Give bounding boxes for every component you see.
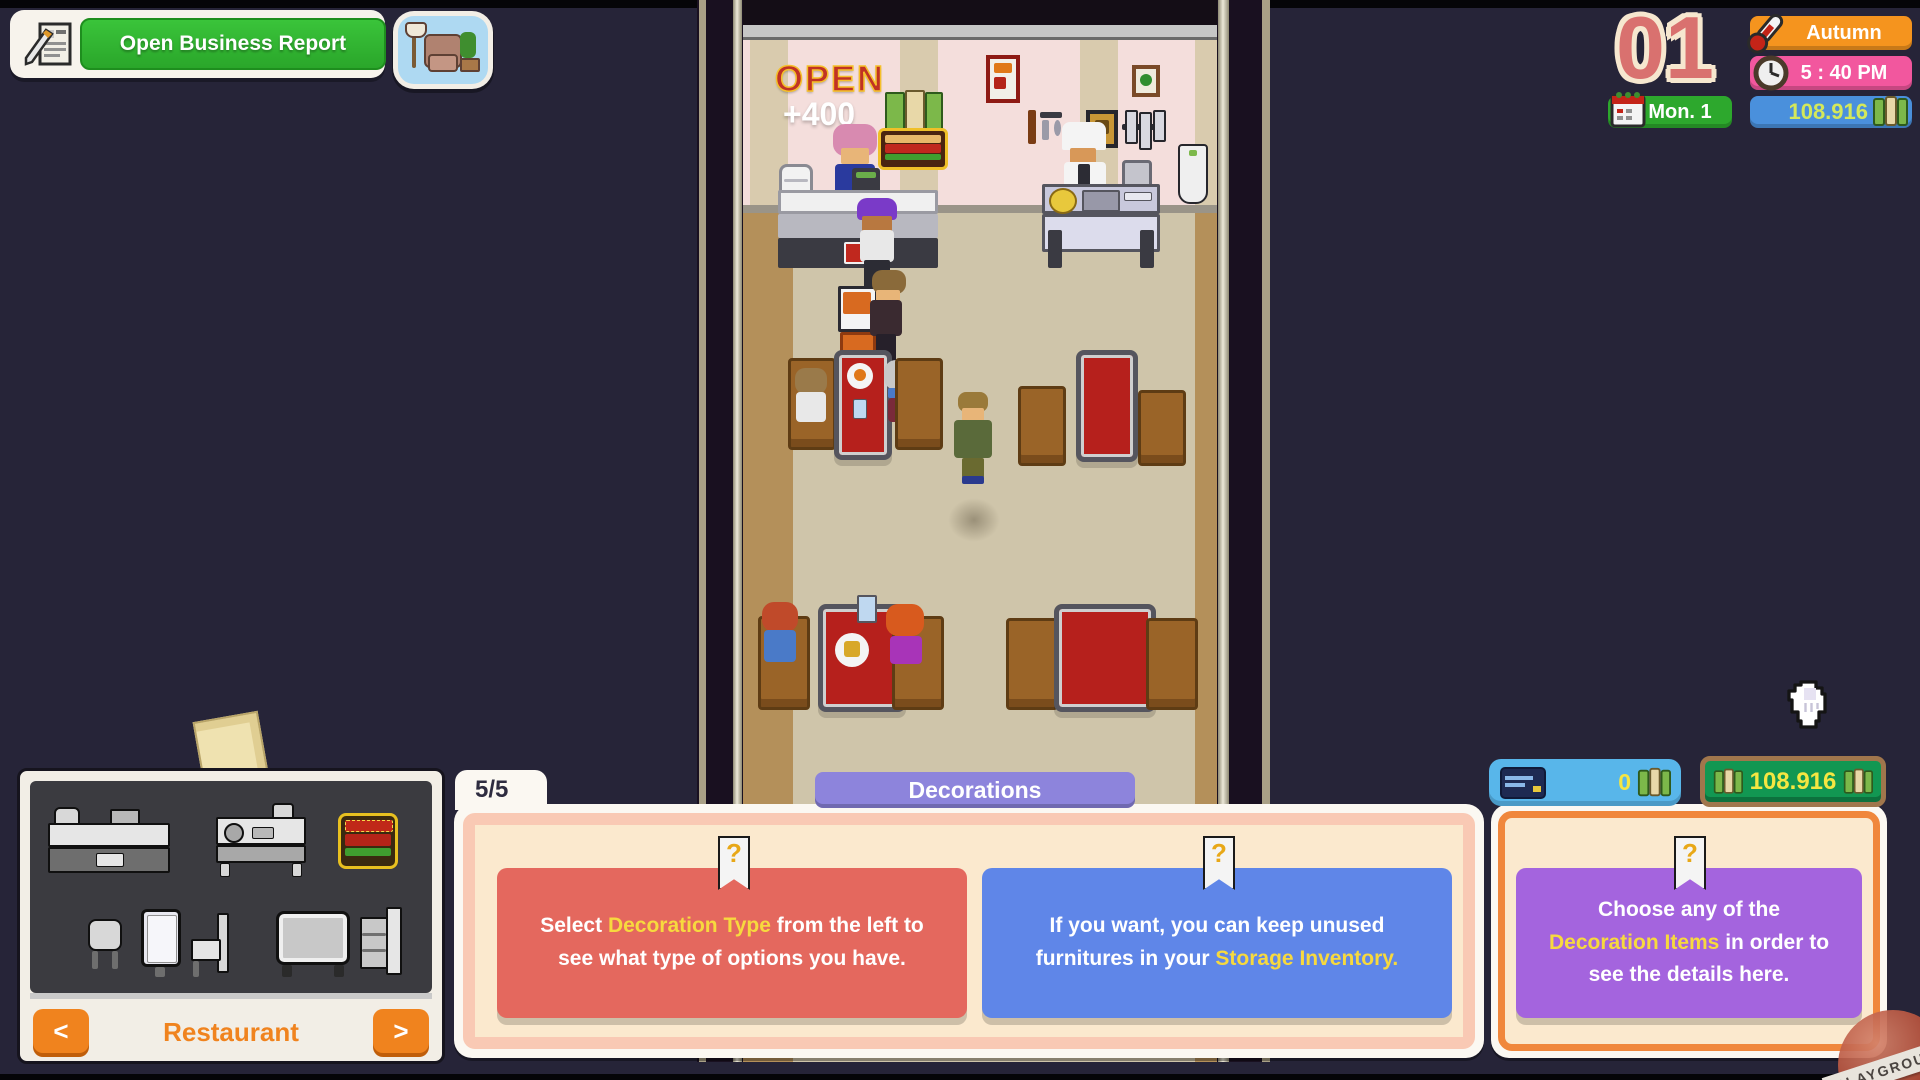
burger-neon-sign[interactable]: [878, 128, 948, 170]
report-container: Open Business Report: [10, 10, 385, 78]
plant-pot: [460, 58, 480, 72]
category-label: Restaurant: [100, 1017, 362, 1048]
clock-icon: [1752, 54, 1790, 92]
hint-card-blue: If you want, you can keep unused furnitu…: [982, 868, 1452, 1018]
cash-label: 108.916: [1750, 768, 1837, 796]
utensil-rack[interactable]: [1028, 110, 1064, 148]
money-label: 108.916: [1788, 99, 1868, 125]
hand-cursor-icon: [1786, 678, 1834, 734]
decorations-header: Decorations: [815, 772, 1135, 808]
hint-card-purple: Choose any of the Decoration Items in or…: [1516, 868, 1862, 1018]
decorations-title: Decorations: [909, 777, 1042, 804]
knife-rack[interactable]: [1122, 110, 1166, 152]
cooking-station[interactable]: [1042, 184, 1160, 268]
calendar-icon: [1608, 88, 1648, 130]
customer-seated: [762, 602, 800, 668]
customer-seated: [886, 604, 926, 670]
armchair-seat: [428, 54, 458, 72]
card-balance-badge: 0: [1489, 759, 1681, 806]
cash-badge: 108.916: [1700, 756, 1886, 807]
money-stack-icon: [1637, 767, 1671, 799]
hint-card-red: Select Decoration Type from the left to …: [497, 868, 967, 1018]
day-number: 01: [1616, 4, 1714, 92]
report-notepad-icon: [24, 20, 74, 68]
bottom-letterbox: [0, 1074, 1920, 1080]
customer-standing: [954, 392, 994, 484]
furniture-mirror-thumb[interactable]: [141, 909, 183, 983]
open-neon-sign: OPEN: [775, 58, 885, 100]
furniture-panel: < Restaurant >: [17, 768, 445, 1064]
open-business-report-button[interactable]: Open Business Report: [80, 18, 386, 70]
red-poster[interactable]: [986, 55, 1020, 103]
customer-seated: [795, 368, 829, 424]
playground-watermark: PLAYGROUND: [1838, 1010, 1920, 1080]
date-label: Mon. 1: [1648, 101, 1711, 124]
card-balance-label: 0: [1547, 769, 1631, 796]
furniture-chair-thumb[interactable]: [191, 913, 229, 979]
dining-table[interactable]: [1054, 604, 1156, 712]
chair[interactable]: [1138, 390, 1186, 466]
hint-panel-main: Select Decoration Type from the left to …: [454, 804, 1484, 1058]
apron-hook[interactable]: [1178, 144, 1208, 204]
prev-arrow-icon: <: [53, 1016, 68, 1047]
furniture-mode-button[interactable]: [398, 16, 488, 84]
chair[interactable]: [1146, 618, 1198, 710]
furniture-table-thumb[interactable]: [276, 911, 350, 977]
clover-picture[interactable]: [1132, 65, 1160, 97]
chair[interactable]: [1018, 386, 1066, 466]
money-stack-icon: [1843, 768, 1873, 796]
money-stack-icon: [1713, 768, 1743, 796]
plant-icon: [460, 32, 476, 58]
furniture-burger-sign-thumb[interactable]: [338, 813, 398, 869]
game-screen: OPEN +400: [0, 0, 1920, 1080]
season-label: Autumn: [1806, 22, 1882, 45]
furniture-stool-thumb[interactable]: [88, 919, 122, 971]
credit-card-icon: [1499, 766, 1547, 800]
furniture-panel-divider: [30, 993, 432, 999]
lamp-shade: [405, 22, 427, 38]
page-count-label: 5/5: [475, 776, 508, 804]
thermometer-icon: [1742, 8, 1790, 58]
money-stack-decor[interactable]: [885, 90, 941, 128]
category-prev-button[interactable]: <: [33, 1009, 89, 1053]
scene-top-bar: [743, 0, 1217, 25]
category-next-button[interactable]: >: [373, 1009, 429, 1053]
time-label: 5 : 40 PM: [1801, 62, 1888, 85]
furniture-stove-thumb[interactable]: [216, 803, 306, 877]
next-arrow-icon: >: [393, 1016, 408, 1047]
furniture-shelf-thumb[interactable]: [360, 907, 402, 979]
dining-table[interactable]: [1076, 350, 1138, 462]
roller-blind: [743, 25, 1217, 40]
chair[interactable]: [895, 358, 943, 450]
furniture-counter-thumb[interactable]: [48, 807, 170, 877]
chair[interactable]: [1006, 618, 1058, 710]
money-stack-icon: [1872, 96, 1908, 128]
floor-shadow: [948, 498, 1000, 542]
